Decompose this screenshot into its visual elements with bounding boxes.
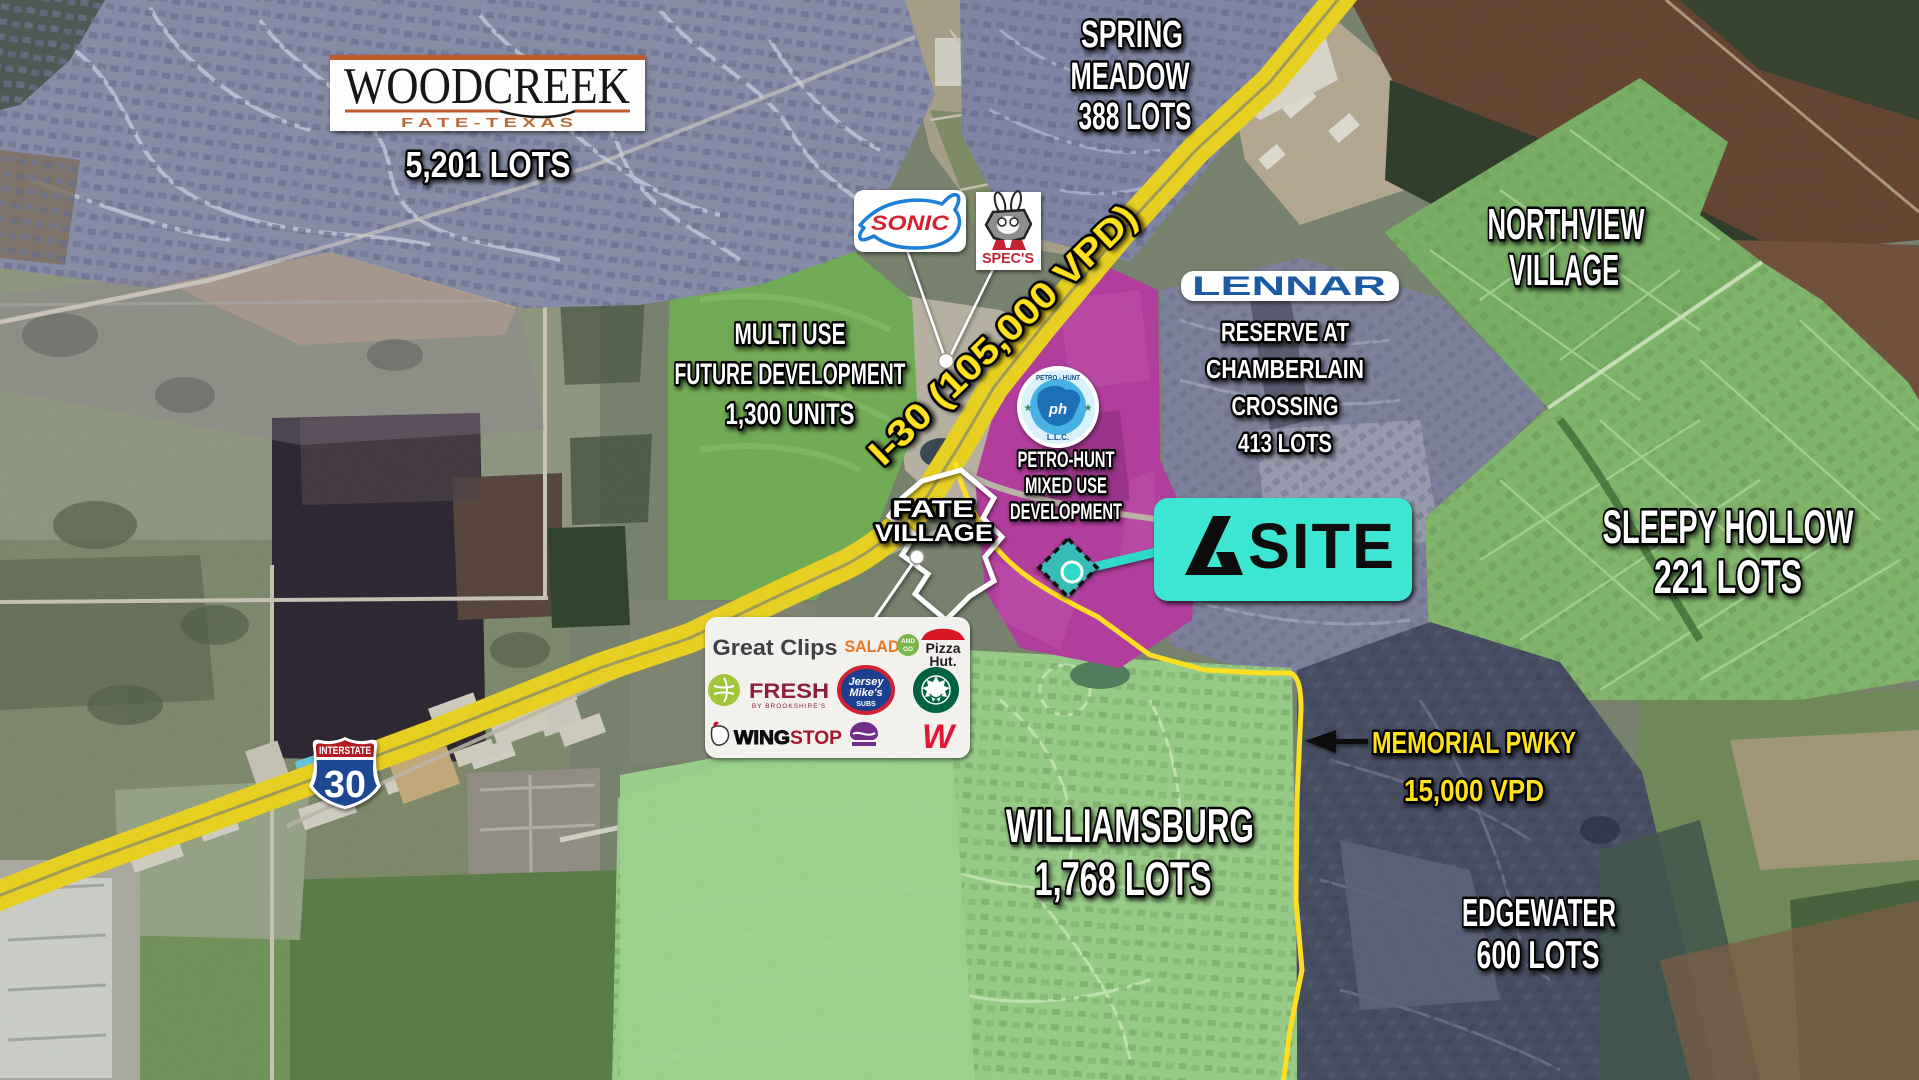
svg-text:600 LOTS: 600 LOTS [1477, 934, 1600, 977]
svg-text:SUBS: SUBS [856, 701, 876, 708]
svg-text:30: 30 [324, 764, 366, 806]
svg-text:CROSSING: CROSSING [1232, 391, 1339, 421]
svg-text:SALAD: SALAD [845, 637, 900, 656]
svg-text:221 LOTS: 221 LOTS [1654, 550, 1802, 603]
svg-text:413 LOTS: 413 LOTS [1238, 428, 1332, 458]
svg-text:INTERSTATE: INTERSTATE [319, 745, 371, 757]
svg-text:W: W [922, 718, 957, 756]
svg-text:15,000 VPD: 15,000 VPD [1404, 773, 1544, 808]
svg-text:Mike's: Mike's [849, 687, 882, 699]
svg-text:VILLAGE: VILLAGE [1509, 246, 1619, 295]
svg-text:L.L.C.: L.L.C. [1047, 433, 1069, 442]
svg-text:AND: AND [901, 638, 915, 645]
svg-text:PETRO - HUNT: PETRO - HUNT [1036, 375, 1081, 382]
svg-text:Hut.: Hut. [929, 653, 956, 669]
svg-text:RESERVE AT: RESERVE AT [1221, 317, 1349, 347]
svg-text:FATE: FATE [892, 496, 974, 523]
svg-text:LENNAR: LENNAR [1192, 271, 1386, 301]
svg-text:SPRING: SPRING [1081, 14, 1183, 56]
svg-text:GO: GO [903, 646, 913, 653]
svg-text:FRESH: FRESH [749, 680, 829, 703]
svg-text:MEMORIAL PWKY: MEMORIAL PWKY [1372, 725, 1576, 760]
svg-text:F A T E - T E X A S: F A T E - T E X A S [401, 115, 573, 130]
svg-text:Great Clips: Great Clips [713, 635, 838, 660]
svg-text:NORTHVIEW: NORTHVIEW [1488, 200, 1645, 249]
svg-text:★: ★ [1024, 403, 1033, 414]
svg-text:MEADOW: MEADOW [1071, 56, 1190, 98]
svg-text:DEVELOPMENT: DEVELOPMENT [1010, 499, 1122, 524]
svg-text:WOODCREEK: WOODCREEK [344, 58, 630, 115]
svg-text:1,768 LOTS: 1,768 LOTS [1035, 852, 1212, 905]
svg-text:★: ★ [1084, 403, 1093, 414]
svg-text:EDGEWATER: EDGEWATER [1462, 892, 1616, 935]
svg-text:ph: ph [1048, 401, 1067, 418]
svg-text:388 LOTS: 388 LOTS [1079, 96, 1192, 138]
svg-text:SITE: SITE [1248, 510, 1396, 582]
svg-text:FUTURE DEVELOPMENT: FUTURE DEVELOPMENT [675, 358, 906, 391]
svg-text:WILLIAMSBURG: WILLIAMSBURG [1006, 799, 1254, 852]
svg-text:SLEEPY HOLLOW: SLEEPY HOLLOW [1603, 500, 1854, 553]
svg-text:BY BROOKSHIRE'S: BY BROOKSHIRE'S [752, 703, 826, 710]
svg-text:MIXED USE: MIXED USE [1025, 473, 1107, 498]
svg-text:WING: WING [734, 728, 790, 749]
svg-text:STOP: STOP [790, 728, 842, 749]
svg-text:SPEC'S: SPEC'S [982, 250, 1034, 267]
svg-text:PETRO-HUNT: PETRO-HUNT [1018, 447, 1115, 472]
svg-text:5,201 LOTS: 5,201 LOTS [406, 144, 571, 185]
svg-text:MULTI USE: MULTI USE [735, 318, 846, 351]
svg-text:1,300 UNITS: 1,300 UNITS [726, 398, 855, 431]
svg-text:SONIC: SONIC [871, 212, 950, 235]
svg-text:CHAMBERLAIN: CHAMBERLAIN [1206, 354, 1364, 384]
svg-text:VILLAGE: VILLAGE [875, 520, 993, 547]
